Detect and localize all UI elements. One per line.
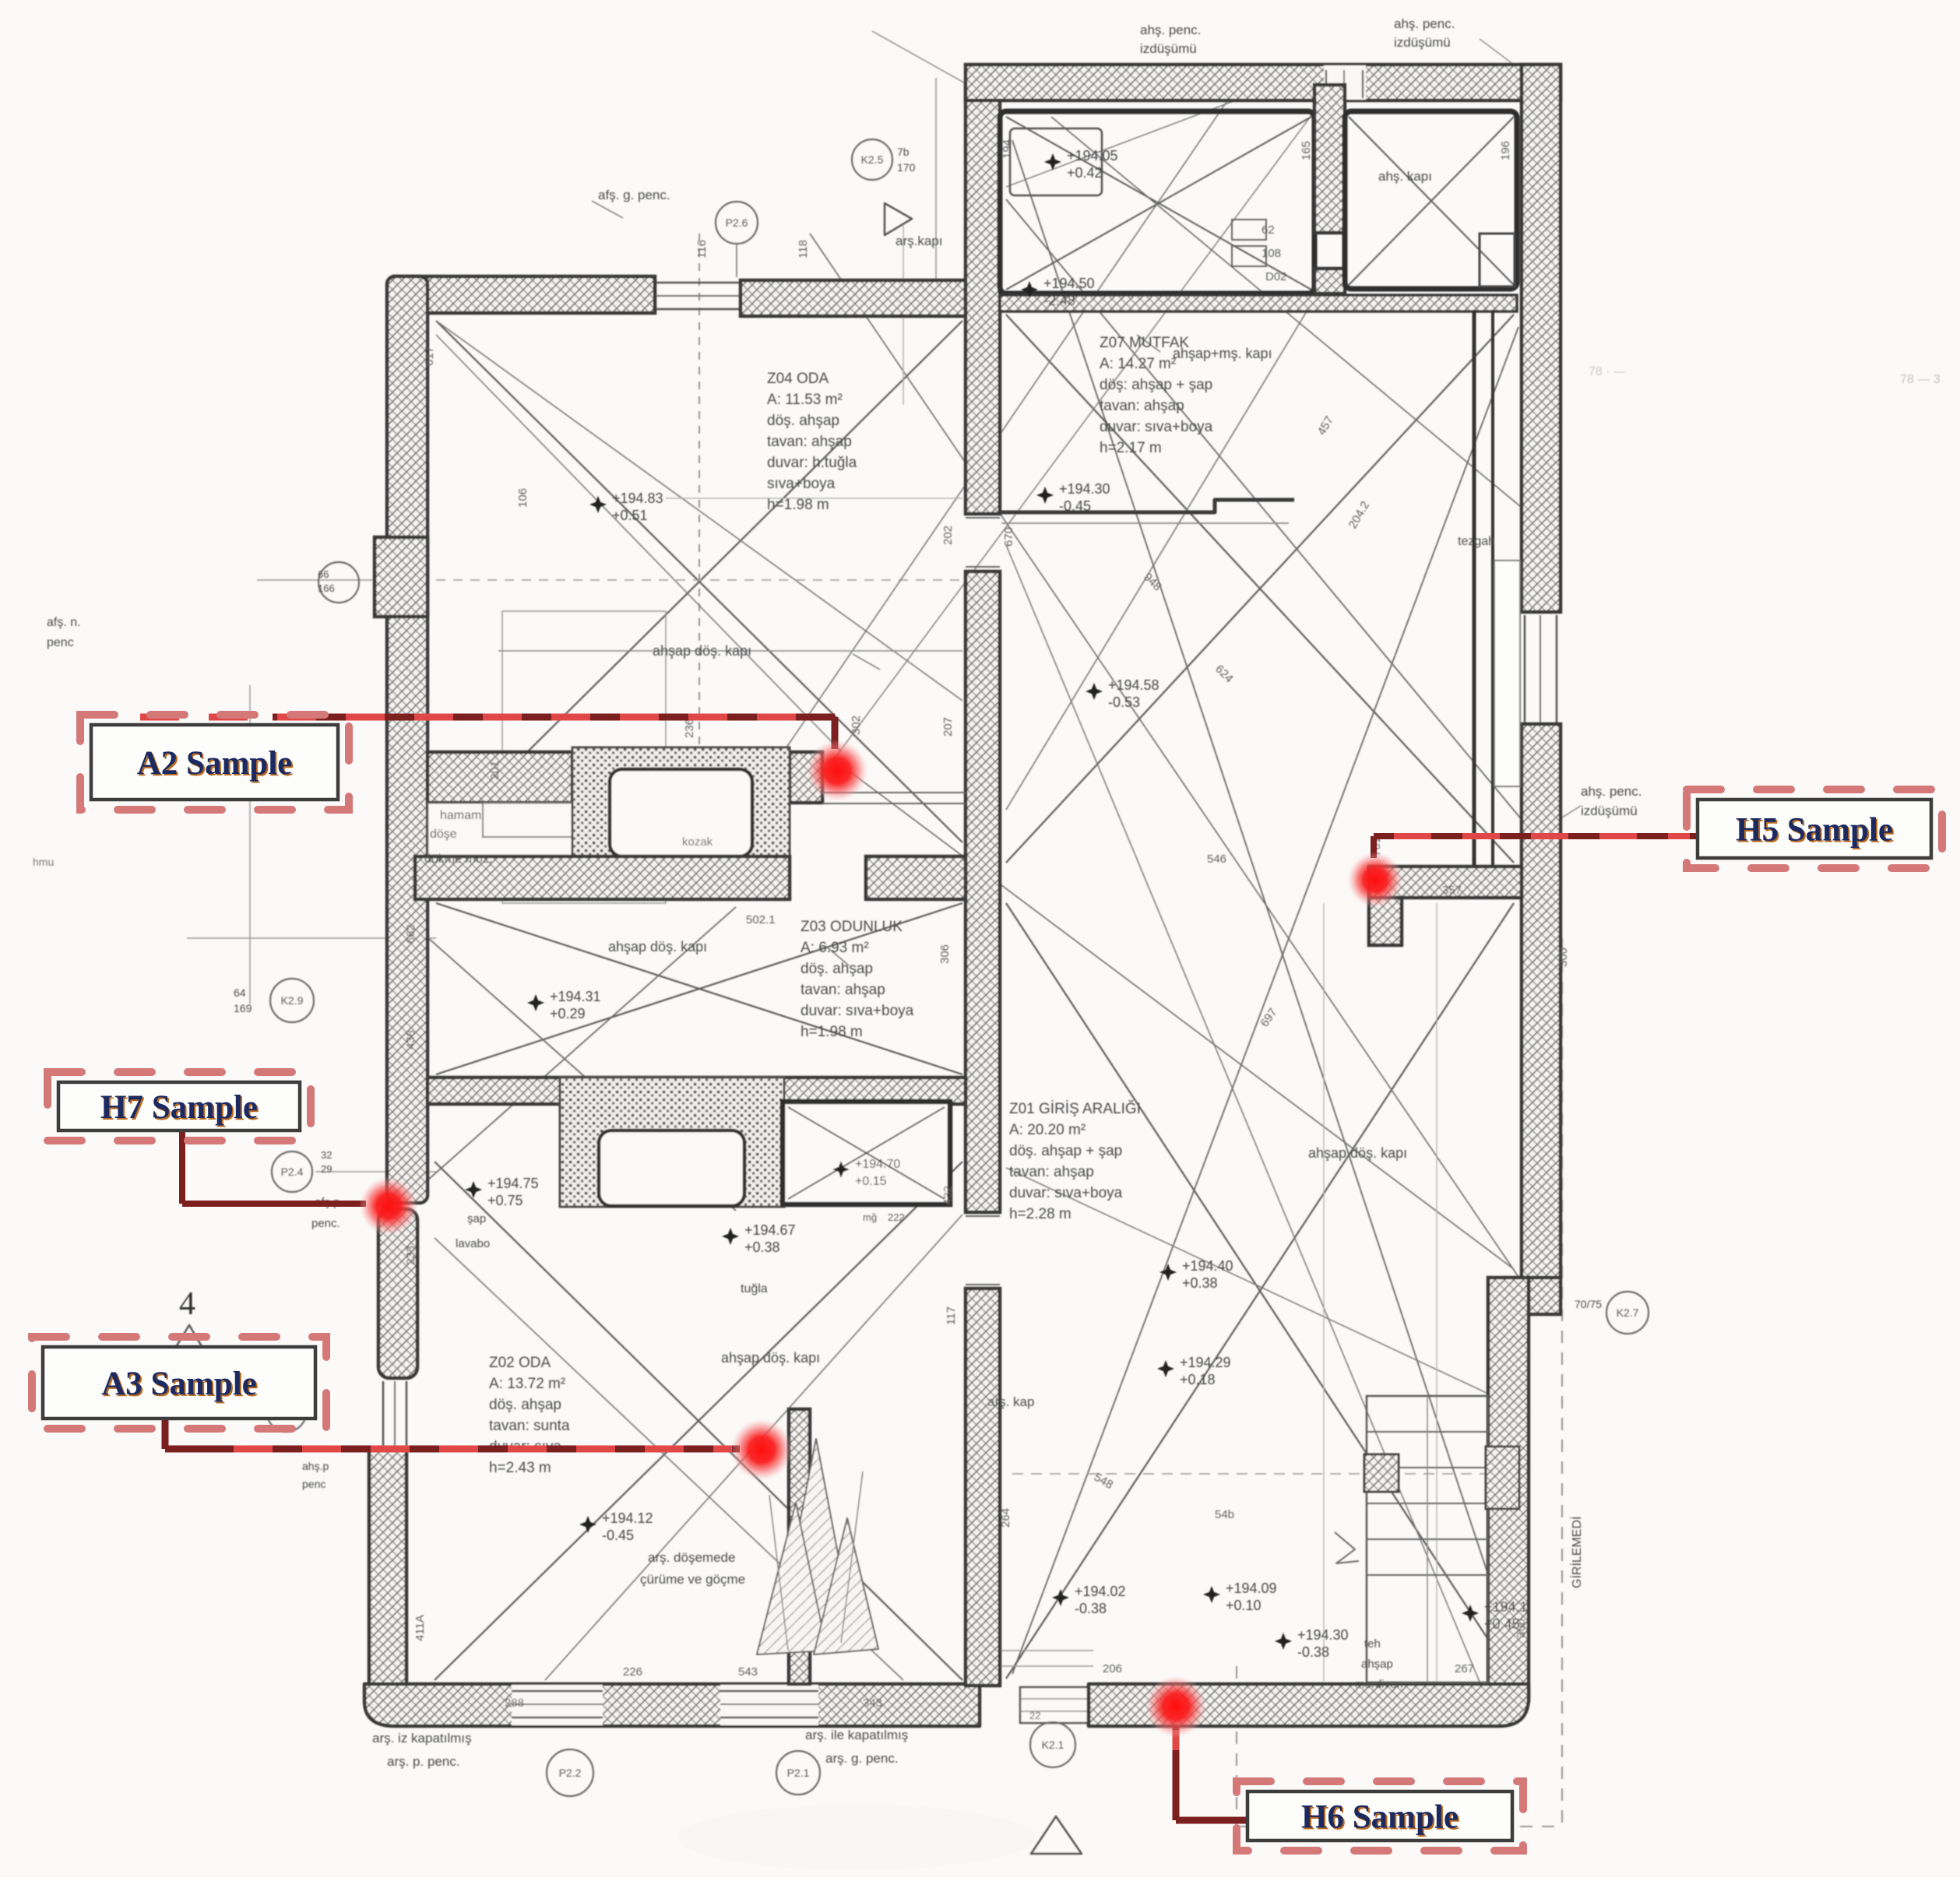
- svg-text:hamam: hamam: [440, 809, 481, 822]
- svg-text:300: 300: [1557, 948, 1570, 967]
- svg-text:64: 64: [234, 986, 246, 999]
- svg-text:Z01 GİRİŞ ARALIĞI: Z01 GİRİŞ ARALIĞI: [1009, 1100, 1141, 1117]
- svg-text:duvar: h.tuğla: duvar: h.tuğla: [767, 455, 857, 471]
- svg-text:tavan: ahşap: tavan: ahşap: [801, 982, 885, 998]
- svg-text:A: 20.20 m²: A: 20.20 m²: [1009, 1122, 1086, 1138]
- svg-text:duvar: sıva+boya: duvar: sıva+boya: [1009, 1185, 1123, 1201]
- svg-text:H7 Sample: H7 Sample: [100, 1089, 258, 1126]
- svg-text:+194.29: +194.29: [1180, 1355, 1231, 1370]
- svg-text:+194.1: +194.1: [1484, 1599, 1528, 1615]
- svg-text:438: 438: [404, 1030, 417, 1049]
- svg-text:penc: penc: [302, 1478, 325, 1490]
- svg-text:h=2.28 m: h=2.28 m: [1009, 1206, 1071, 1222]
- svg-text:165: 165: [1300, 141, 1313, 160]
- svg-text:Z03 ODUNLUK: Z03 ODUNLUK: [801, 919, 903, 935]
- svg-text:302: 302: [850, 715, 863, 735]
- svg-text:H6 Sample: H6 Sample: [1301, 1799, 1459, 1836]
- svg-text:P2.2: P2.2: [559, 1767, 582, 1779]
- svg-text:tavan: ahşap: tavan: ahşap: [1100, 398, 1184, 414]
- svg-text:+194.31: +194.31: [550, 989, 601, 1004]
- svg-text:döşe: döşe: [430, 828, 457, 841]
- svg-text:207: 207: [941, 717, 955, 737]
- svg-text:penc.: penc.: [311, 1217, 340, 1230]
- svg-text:döş. ahşap + şap: döş. ahşap + şap: [1009, 1143, 1122, 1159]
- svg-text:54b: 54b: [1215, 1508, 1234, 1521]
- svg-text:duvar: sıva+boya: duvar: sıva+boya: [801, 1003, 914, 1019]
- svg-text:118: 118: [797, 240, 810, 258]
- svg-text:ahş.p: ahş.p: [302, 1460, 329, 1472]
- svg-text:döş. ahşap: döş. ahşap: [801, 961, 873, 977]
- svg-text:+0.18: +0.18: [1180, 1372, 1216, 1387]
- svg-text:K2.5: K2.5: [861, 153, 884, 166]
- svg-text:343: 343: [863, 1696, 882, 1710]
- svg-text:546: 546: [1207, 853, 1226, 866]
- svg-text:617: 617: [423, 346, 436, 366]
- svg-text:357: 357: [1442, 884, 1462, 897]
- svg-text:300: 300: [1515, 1619, 1528, 1638]
- svg-text:-0.53: -0.53: [1108, 694, 1140, 710]
- svg-text:A: 13.72 m²: A: 13.72 m²: [489, 1376, 565, 1392]
- svg-text:226: 226: [623, 1665, 642, 1679]
- svg-text:h=1.98 m: h=1.98 m: [767, 497, 829, 513]
- svg-text:izdüşümü: izdüşümü: [1394, 35, 1451, 50]
- svg-text:+194.75: +194.75: [487, 1176, 539, 1191]
- svg-text:108: 108: [1262, 247, 1281, 260]
- svg-text:-0.38: -0.38: [1075, 1601, 1107, 1616]
- svg-text:şap: şap: [467, 1212, 486, 1225]
- svg-text:+194.40: +194.40: [1182, 1258, 1233, 1274]
- svg-text:306: 306: [938, 944, 952, 964]
- svg-text:Z02 ODA: Z02 ODA: [489, 1355, 551, 1371]
- svg-text:hmu: hmu: [33, 856, 54, 868]
- svg-text:78 — 3: 78 — 3: [1900, 373, 1941, 386]
- svg-text:tuğla: tuğla: [741, 1282, 768, 1296]
- svg-text:tavan: ahşap: tavan: ahşap: [1009, 1164, 1094, 1180]
- svg-text:arş.kapı: arş.kapı: [896, 234, 942, 248]
- svg-text:arş. iz kapatılmış: arş. iz kapatılmış: [372, 1731, 472, 1746]
- svg-text:+194.05: +194.05: [1067, 148, 1118, 163]
- svg-text:döş: ahşap + şap: döş: ahşap + şap: [1100, 377, 1212, 393]
- svg-text:+0.38: +0.38: [744, 1239, 780, 1255]
- svg-text:lavabo: lavabo: [456, 1237, 490, 1250]
- svg-text:+194.83: +194.83: [612, 490, 663, 506]
- svg-text:+0.75: +0.75: [487, 1193, 523, 1208]
- svg-text:194: 194: [1001, 139, 1014, 159]
- svg-text:arş. ile kapatılmış: arş. ile kapatılmış: [805, 1728, 908, 1742]
- svg-text:ahşap döş. kapı: ahşap döş. kapı: [1308, 1145, 1407, 1161]
- svg-text:dökme moz.: dökme moz.: [424, 853, 492, 866]
- svg-text:+0.42: +0.42: [1067, 165, 1103, 181]
- svg-text:264: 264: [999, 1508, 1012, 1528]
- svg-text:çürüme ve göçme: çürüme ve göçme: [640, 1572, 745, 1587]
- svg-text:arş. kap: arş. kap: [987, 1394, 1034, 1409]
- svg-text:432: 432: [941, 1186, 955, 1205]
- svg-text:arş. p. penc.: arş. p. penc.: [387, 1754, 460, 1769]
- svg-text:h=2.43 m: h=2.43 m: [489, 1460, 551, 1476]
- svg-text:267: 267: [1455, 1662, 1474, 1675]
- svg-text:GİRİLEMEDİ: GİRİLEMEDİ: [1569, 1517, 1584, 1588]
- svg-text:+0.38: +0.38: [1182, 1275, 1218, 1291]
- svg-text:202: 202: [941, 526, 955, 545]
- svg-text:arş. döşemede: arş. döşemede: [648, 1550, 735, 1565]
- svg-text:236: 236: [683, 719, 696, 738]
- svg-text:+194.09: +194.09: [1226, 1580, 1277, 1596]
- svg-text:D02: D02: [1265, 270, 1287, 283]
- svg-text:tavan: sunta: tavan: sunta: [489, 1418, 570, 1434]
- svg-text:A3 Sample: A3 Sample: [101, 1366, 256, 1402]
- svg-text:+0.10: +0.10: [1226, 1598, 1262, 1613]
- svg-text:-0.38: -0.38: [1297, 1644, 1329, 1660]
- svg-text:h=1.98 m: h=1.98 m: [801, 1024, 863, 1040]
- svg-text:206: 206: [1103, 1662, 1122, 1675]
- svg-text:afş. g. penc.: afş. g. penc.: [598, 188, 670, 202]
- svg-text:662: 662: [404, 924, 417, 944]
- svg-text:+194.30: +194.30: [1297, 1627, 1349, 1643]
- svg-text:-0.45: -0.45: [602, 1528, 634, 1543]
- svg-text:kozak: kozak: [682, 835, 713, 849]
- svg-text:411A: 411A: [413, 1615, 427, 1641]
- svg-text:ahşap döş. kapı: ahşap döş. kapı: [721, 1350, 820, 1366]
- svg-text:penc: penc: [47, 636, 74, 649]
- svg-text:mğ: mğ: [863, 1211, 877, 1223]
- svg-text:+194.58: +194.58: [1108, 677, 1159, 693]
- svg-text:7b: 7b: [897, 146, 910, 158]
- svg-text:A2 Sample: A2 Sample: [137, 745, 292, 782]
- svg-text:K2.1: K2.1: [1042, 1739, 1064, 1751]
- svg-text:70/75: 70/75: [1575, 1298, 1602, 1310]
- svg-text:Z04 ODA: Z04 ODA: [767, 371, 829, 387]
- svg-text:duvar: sıva+boya: duvar: sıva+boya: [1100, 419, 1213, 435]
- svg-text:H5 Sample: H5 Sample: [1736, 812, 1893, 849]
- svg-text:233: 233: [404, 1246, 417, 1265]
- svg-text:afş. n.: afş. n.: [47, 616, 81, 629]
- svg-text:170: 170: [897, 161, 916, 174]
- svg-text:106: 106: [516, 488, 530, 508]
- svg-text:teh: teh: [1364, 1637, 1381, 1651]
- svg-text:K2.7: K2.7: [1617, 1306, 1639, 1319]
- svg-text:P2.4: P2.4: [281, 1166, 304, 1178]
- svg-text:201: 201: [488, 761, 501, 780]
- svg-text:62: 62: [1262, 223, 1275, 237]
- svg-text:tezgah: tezgah: [1458, 535, 1495, 548]
- svg-text:543: 543: [738, 1665, 758, 1679]
- svg-text:A: 14.27 m²: A: 14.27 m²: [1100, 356, 1176, 372]
- svg-text:izdüşümü: izdüşümü: [1140, 41, 1197, 56]
- svg-text:sıva+boya: sıva+boya: [767, 476, 836, 492]
- svg-text:117: 117: [945, 1306, 958, 1325]
- svg-text:+194.67: +194.67: [744, 1222, 796, 1238]
- svg-text:ahş. kapı: ahş. kapı: [1378, 169, 1432, 184]
- svg-text:+0.15: +0.15: [855, 1175, 887, 1188]
- svg-text:tavan: ahşap: tavan: ahşap: [767, 434, 852, 450]
- svg-text:A: 11.53 m²: A: 11.53 m²: [767, 392, 843, 408]
- svg-text:22: 22: [1029, 1710, 1040, 1721]
- svg-text:166: 166: [318, 582, 335, 594]
- svg-text:29: 29: [321, 1163, 332, 1175]
- svg-text:-2.48: -2.48: [1043, 293, 1075, 308]
- svg-text:arş. g. penc.: arş. g. penc.: [825, 1751, 899, 1766]
- svg-text:32: 32: [321, 1149, 332, 1161]
- svg-text:+0.51: +0.51: [612, 508, 648, 523]
- svg-text:P2.1: P2.1: [787, 1767, 810, 1779]
- svg-text:+194.70: +194.70: [855, 1158, 900, 1171]
- svg-text:A: 6.93 m²: A: 6.93 m²: [801, 940, 869, 956]
- svg-text:h=2.17 m: h=2.17 m: [1100, 440, 1162, 456]
- svg-text:izdüşümü: izdüşümü: [1581, 803, 1638, 818]
- svg-text:P2.6: P2.6: [726, 216, 748, 229]
- svg-text:+194.12: +194.12: [602, 1510, 653, 1526]
- svg-text:ahş. penc.: ahş. penc.: [1394, 16, 1455, 31]
- svg-text:+194.02: +194.02: [1075, 1584, 1126, 1599]
- svg-text:78 · —: 78 · —: [1589, 365, 1626, 378]
- svg-text:döş. ahşap: döş. ahşap: [767, 413, 839, 429]
- svg-text:ahşap döş. kapı: ahşap döş. kapı: [608, 939, 707, 955]
- svg-text:ahşap döş. kapı: ahşap döş. kapı: [653, 643, 751, 659]
- svg-text:+194.30: +194.30: [1059, 481, 1110, 497]
- svg-text:502.1: 502.1: [746, 913, 776, 926]
- svg-text:66: 66: [318, 568, 329, 580]
- svg-text:222: 222: [888, 1211, 905, 1223]
- svg-text:169: 169: [234, 1002, 252, 1014]
- svg-text:4: 4: [179, 1286, 195, 1322]
- svg-text:merdiven: merdiven: [1355, 1678, 1403, 1691]
- svg-text:670: 670: [1002, 527, 1015, 547]
- svg-text:K2.9: K2.9: [281, 994, 304, 1007]
- svg-text:ahşap+mş. kapı: ahşap+mş. kapı: [1173, 346, 1272, 361]
- svg-text:-0.45: -0.45: [1059, 498, 1091, 514]
- svg-text:116: 116: [695, 240, 709, 258]
- svg-text:288: 288: [505, 1696, 524, 1710]
- svg-text:196: 196: [1499, 141, 1512, 160]
- svg-text:ahşap: ahşap: [1361, 1658, 1393, 1671]
- svg-text:döş. ahşap: döş. ahşap: [489, 1397, 561, 1413]
- svg-text:ahş. penc.: ahş. penc.: [1140, 23, 1201, 37]
- svg-text:+0.29: +0.29: [550, 1006, 586, 1021]
- svg-text:ahş. penc.: ahş. penc.: [1581, 784, 1642, 799]
- svg-text:+194.50: +194.50: [1043, 276, 1095, 291]
